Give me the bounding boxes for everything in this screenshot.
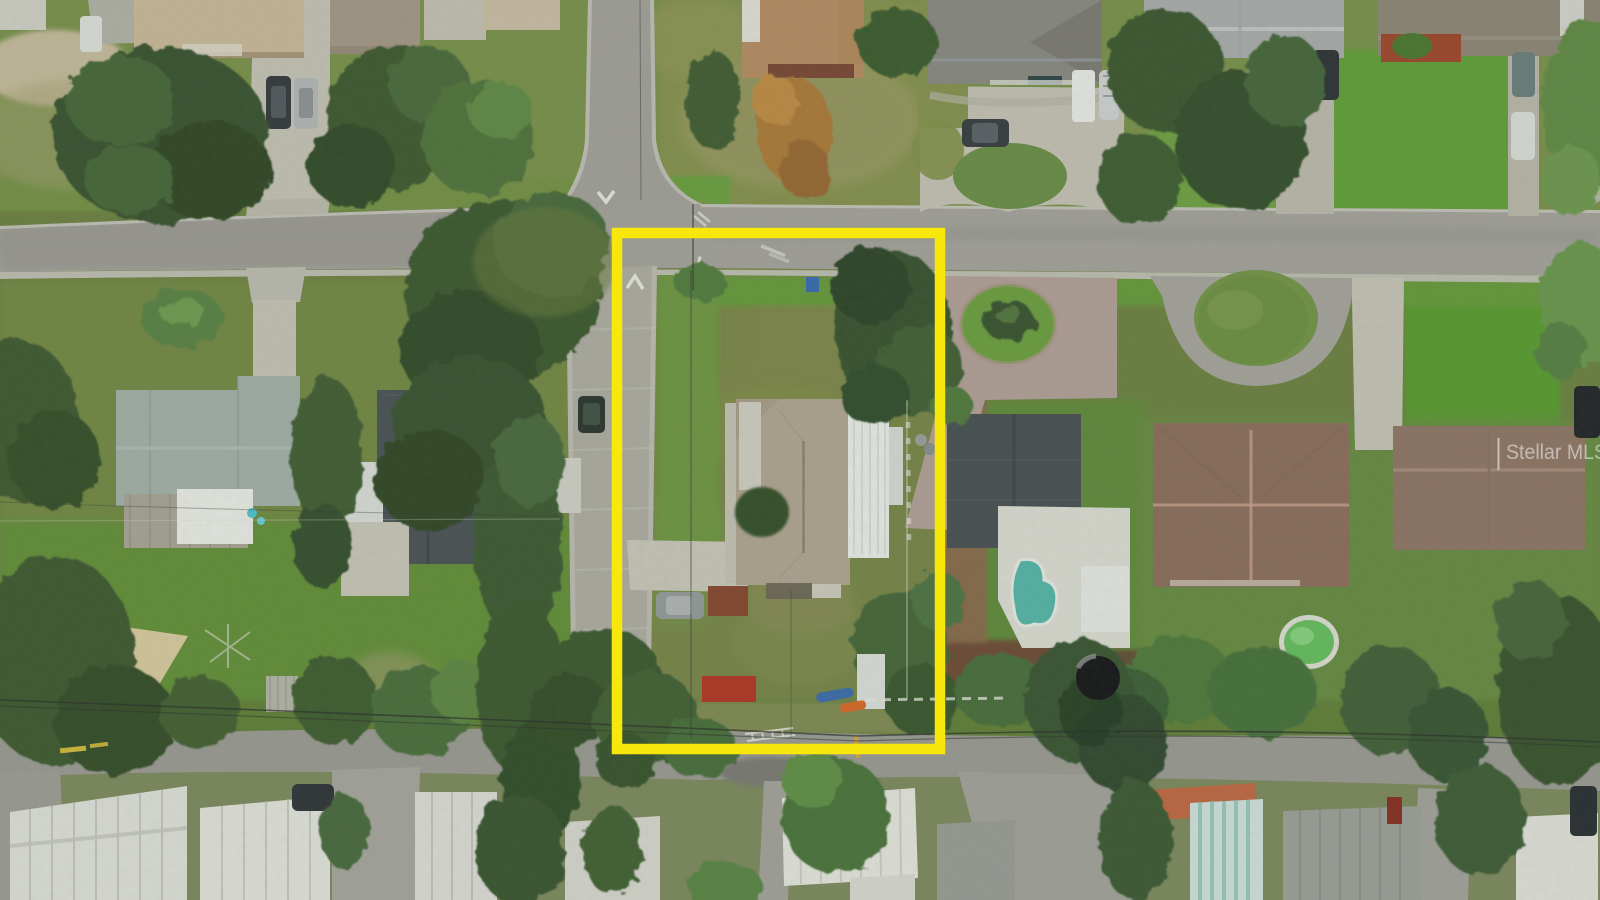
svg-text:Stellar MLS: Stellar MLS	[1506, 441, 1600, 464]
